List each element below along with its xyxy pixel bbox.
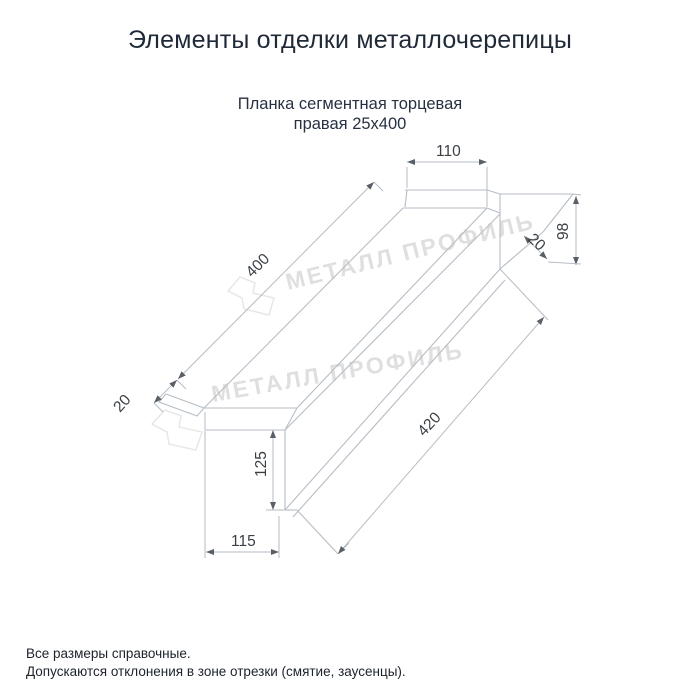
face-bottom-bend	[285, 269, 500, 510]
dim-length-bottom-label: 420	[414, 409, 444, 440]
dim-hem-near-label: 20	[110, 391, 134, 415]
far-flat-left-fold	[405, 190, 407, 207]
dimension-labels: 110 400 20 98 20 420 125 115	[110, 143, 572, 550]
body-edge-top-back	[297, 208, 487, 408]
dim-400-tick-bottom	[177, 380, 186, 389]
dim-top-width-label: 110	[436, 143, 461, 160]
watermark-text-1: МЕТАЛЛ ПРОФИЛЬ	[283, 208, 538, 295]
far-flat-conn-1	[487, 190, 500, 194]
bottom-flange-near-edge-b	[297, 510, 338, 554]
footnote-1: Все размеры справочные.	[26, 646, 191, 661]
technical-drawing: МЕТАЛЛ ПРОФИЛЬ МЕТАЛЛ ПРОФИЛЬ	[0, 0, 700, 700]
watermark-text-2: МЕТАЛЛ ПРОФИЛЬ	[209, 337, 466, 407]
dim-length-top-label: 400	[243, 250, 274, 281]
dim-height-far-label: 98	[555, 223, 572, 240]
dim-98-ext-top	[573, 194, 581, 195]
far-flat-conn-2	[487, 208, 500, 213]
dim-20-near-tick	[154, 403, 163, 412]
logo-watermark-1	[228, 277, 274, 315]
dim-420-ext-far	[500, 269, 548, 320]
footnote-2: Допускаются отклонения в зоне отрезки (с…	[26, 664, 406, 679]
dim-20-near-line	[154, 380, 177, 403]
dim-height-near-label: 125	[253, 451, 270, 477]
logo-watermark-2	[152, 410, 202, 450]
dim-400-tick-top	[374, 182, 383, 191]
near-hem-fold	[159, 394, 204, 416]
dim-bottom-width-label: 115	[231, 533, 256, 550]
